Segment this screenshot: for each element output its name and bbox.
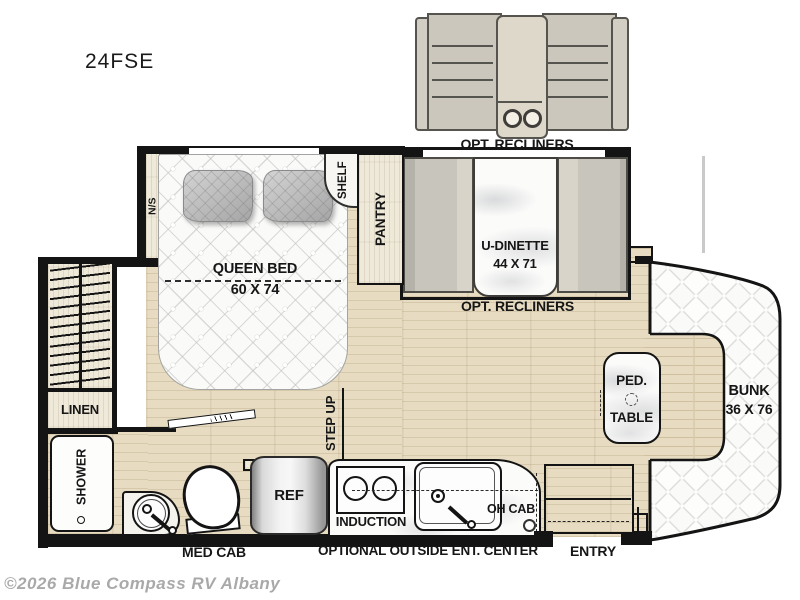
dinette-bench-right [557, 157, 628, 293]
entry-step-line [637, 507, 639, 535]
pedestal-table: PED. TABLE [603, 352, 661, 444]
sink-knob [467, 520, 476, 529]
dinette-size: 44 X 71 [475, 257, 555, 271]
queen-bed-size: 60 X 74 [211, 283, 299, 298]
queen-bed-label: QUEEN BED [195, 262, 315, 277]
pillow [183, 170, 253, 222]
entry-steps [544, 464, 634, 534]
ref-label: REF [274, 488, 303, 504]
cupholder-icon [523, 109, 542, 128]
bunk-label: BUNK [718, 384, 780, 399]
step-up-label: STEP UP [322, 390, 339, 456]
sink-faucet-dot [436, 494, 440, 498]
oh-cab-label: OH CAB [483, 503, 539, 516]
closet-rod [79, 264, 82, 388]
linen-label: LINEN [48, 403, 112, 417]
burner-icon [372, 476, 397, 501]
cupholder-icon [503, 109, 522, 128]
recliner-armrest-right [611, 17, 629, 131]
pillow [263, 170, 333, 222]
ped-table-label1: PED. [605, 374, 658, 388]
step-line [342, 388, 344, 462]
entry-label: ENTRY [561, 544, 625, 559]
door-track-ticks [210, 414, 232, 422]
recliner-console [496, 15, 548, 139]
entry-door-block-left [534, 531, 553, 546]
linen-cabinet: LINEN [46, 390, 114, 430]
optional-recliners [415, 13, 625, 137]
dinette-label: U-DINETTE [475, 239, 555, 253]
wall-hall [112, 427, 176, 432]
shower-label: SHOWER [52, 439, 111, 515]
drain-icon [77, 516, 85, 524]
pantry-label: PANTRY [359, 155, 402, 283]
dinette-table: U-DINETTE 44 X 71 [473, 157, 558, 297]
shower: SHOWER [50, 435, 114, 532]
refrigerator: REF [250, 456, 328, 535]
induction-label: INDUCTION [330, 515, 412, 529]
slide-stop-top [635, 256, 652, 264]
shelf: SHELF [324, 154, 358, 208]
pedestal-base-icon [625, 393, 638, 406]
kitchen-sink [414, 462, 502, 531]
watermark: ©2026 Blue Compass RV Albany [4, 574, 280, 594]
u-dinette-slideout: U-DINETTE 44 X 71 [400, 147, 631, 300]
exterior-mask [631, 140, 656, 252]
opt-recliners-floor-label: OPT. RECLINERS [440, 299, 595, 314]
page-title: 24FSE [85, 50, 154, 74]
bunk-size: 36 X 76 [716, 402, 782, 417]
wardrobe [46, 262, 114, 390]
med-cab-label: MED CAB [178, 545, 250, 560]
dinette-bench-left [403, 157, 474, 293]
ped-table-dash-left [600, 390, 601, 416]
ped-table-label2: TABLE [605, 411, 658, 425]
faucet-knob [168, 526, 177, 535]
burner-icon [343, 476, 368, 501]
wall-bedroom-left [137, 146, 146, 267]
outside-center-label: OPTIONAL OUTSIDE ENT. CENTER [314, 544, 542, 558]
faucet-icon [142, 504, 152, 514]
pantry: PANTRY [357, 153, 404, 285]
recliner-seat-right [542, 13, 617, 131]
oh-cab-outline-h [352, 490, 538, 491]
cab-side-line [702, 156, 705, 253]
recliner-seat-left [427, 13, 502, 131]
floorplan-canvas: 24FSE [0, 0, 800, 600]
shelf-label: SHELF [328, 154, 358, 206]
